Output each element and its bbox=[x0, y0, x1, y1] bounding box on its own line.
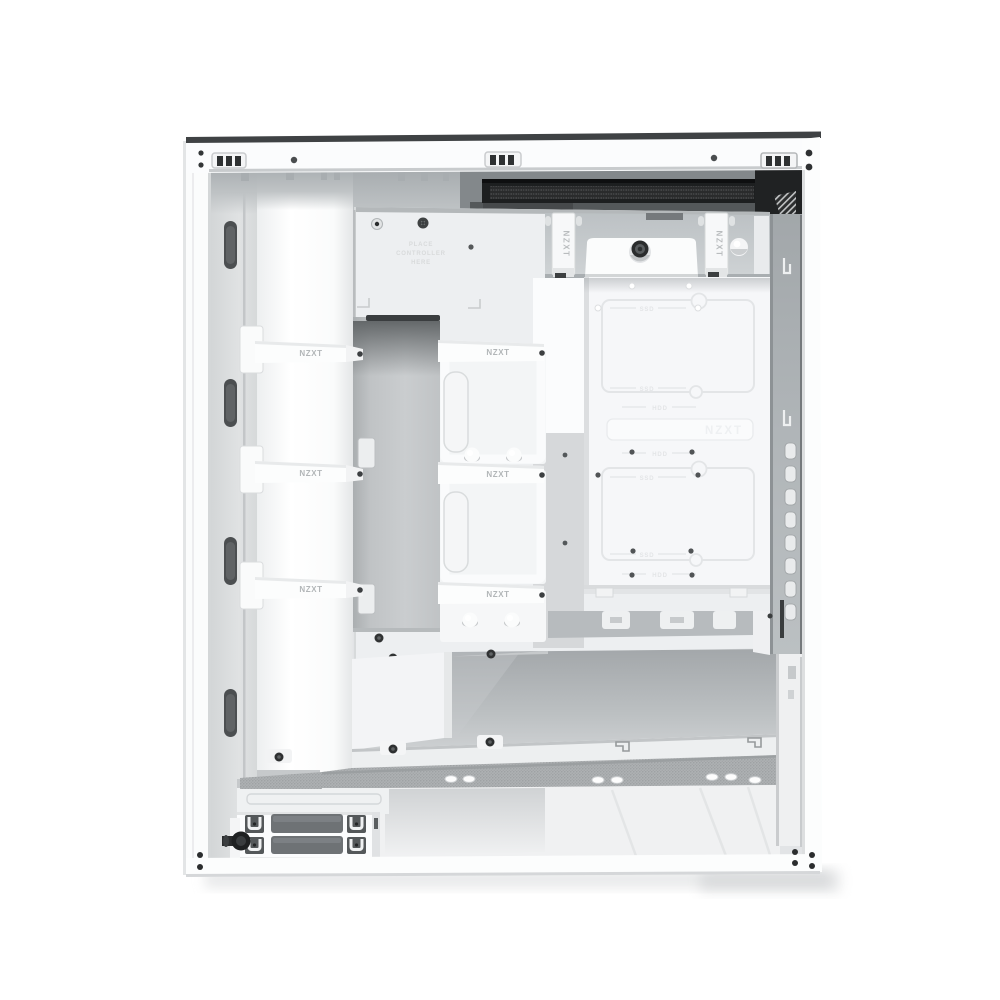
svg-text:NZXT: NZXT bbox=[299, 469, 322, 478]
svg-text:NZXT: NZXT bbox=[486, 348, 509, 357]
svg-text:NZXT: NZXT bbox=[299, 349, 322, 358]
svg-text:NZXT: NZXT bbox=[299, 585, 322, 594]
svg-text:NZXT: NZXT bbox=[486, 470, 509, 479]
svg-text:NZXT: NZXT bbox=[705, 425, 743, 437]
svg-text:NZXT: NZXT bbox=[486, 590, 509, 599]
svg-text:SSD: SSD bbox=[640, 553, 655, 559]
svg-text:HERE: HERE bbox=[411, 260, 431, 266]
svg-text:SSD: SSD bbox=[640, 307, 655, 313]
svg-text:HDD: HDD bbox=[652, 573, 667, 579]
svg-text:SSD: SSD bbox=[640, 476, 655, 482]
svg-text:SSD: SSD bbox=[640, 387, 655, 393]
svg-text:NZXT: NZXT bbox=[562, 231, 571, 258]
svg-text:PLACE: PLACE bbox=[409, 242, 433, 248]
svg-text:NZXT: NZXT bbox=[715, 231, 724, 258]
svg-text:HDD: HDD bbox=[652, 406, 667, 412]
svg-text:CONTROLLER: CONTROLLER bbox=[396, 251, 446, 257]
svg-text:HDD: HDD bbox=[652, 452, 667, 458]
